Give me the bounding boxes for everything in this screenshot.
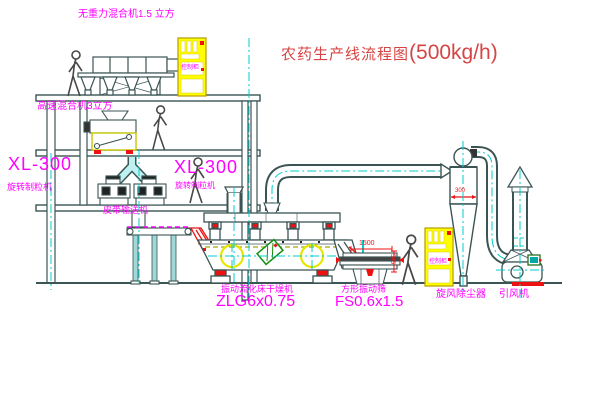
- granulator-left-model-label: XL-300: [8, 155, 72, 173]
- title-capacity: (500kg/h): [409, 42, 498, 63]
- main-exhaust-duct: [264, 171, 441, 213]
- fan-label: 引风机: [499, 290, 529, 300]
- flow-diagram-canvas: 无重力混合机1.5 立方 农药生产线流程图 (500kg/h) 高速混合机3立方…: [0, 0, 600, 403]
- cyclone-label: 旋风除尘器: [436, 290, 486, 300]
- sieve-model-label: FS0.6x1.5: [335, 294, 403, 309]
- control-cabinet-right: [425, 228, 453, 286]
- cabinet-top-label: 控制柜: [181, 65, 199, 71]
- sieve-width-dimension: 1500: [359, 240, 375, 247]
- induced-draft-fan: [502, 250, 544, 286]
- high-speed-mixer-label: 高速混合机3立方: [37, 102, 113, 112]
- belt-conveyor: [127, 211, 191, 284]
- vibration-mounts: [209, 222, 335, 240]
- page-title: 农药生产线流程图 (500kg/h): [281, 42, 498, 63]
- cyclone-dimension: 300: [455, 188, 465, 194]
- granulator-left: [98, 176, 130, 205]
- high-speed-mixer: [84, 111, 136, 154]
- granulator-right-name-label: 旋转制粒机: [175, 182, 215, 190]
- title-text: 农药生产线流程图: [281, 47, 409, 62]
- person-figure: [402, 235, 417, 285]
- cabinet-right-label: 控制柜: [429, 259, 447, 265]
- granulator-left-name-label: 旋转制粒机: [7, 183, 52, 192]
- sieve-height-dimension: 545: [389, 254, 395, 264]
- fan-motor: [528, 255, 542, 265]
- gravity-mixer: [78, 57, 185, 95]
- fluid-bed-dryer: [198, 187, 361, 283]
- gravity-mixer-label: 无重力混合机1.5 立方: [78, 10, 175, 20]
- person-figure: [153, 106, 167, 150]
- granulator-right-model-label: XL-300: [174, 158, 238, 176]
- mixer-discharge-funnels: [81, 77, 161, 95]
- belt-conveyor-label: 皮带输送机: [103, 206, 148, 215]
- dryer-model-label: ZLG6x0.75: [216, 294, 295, 310]
